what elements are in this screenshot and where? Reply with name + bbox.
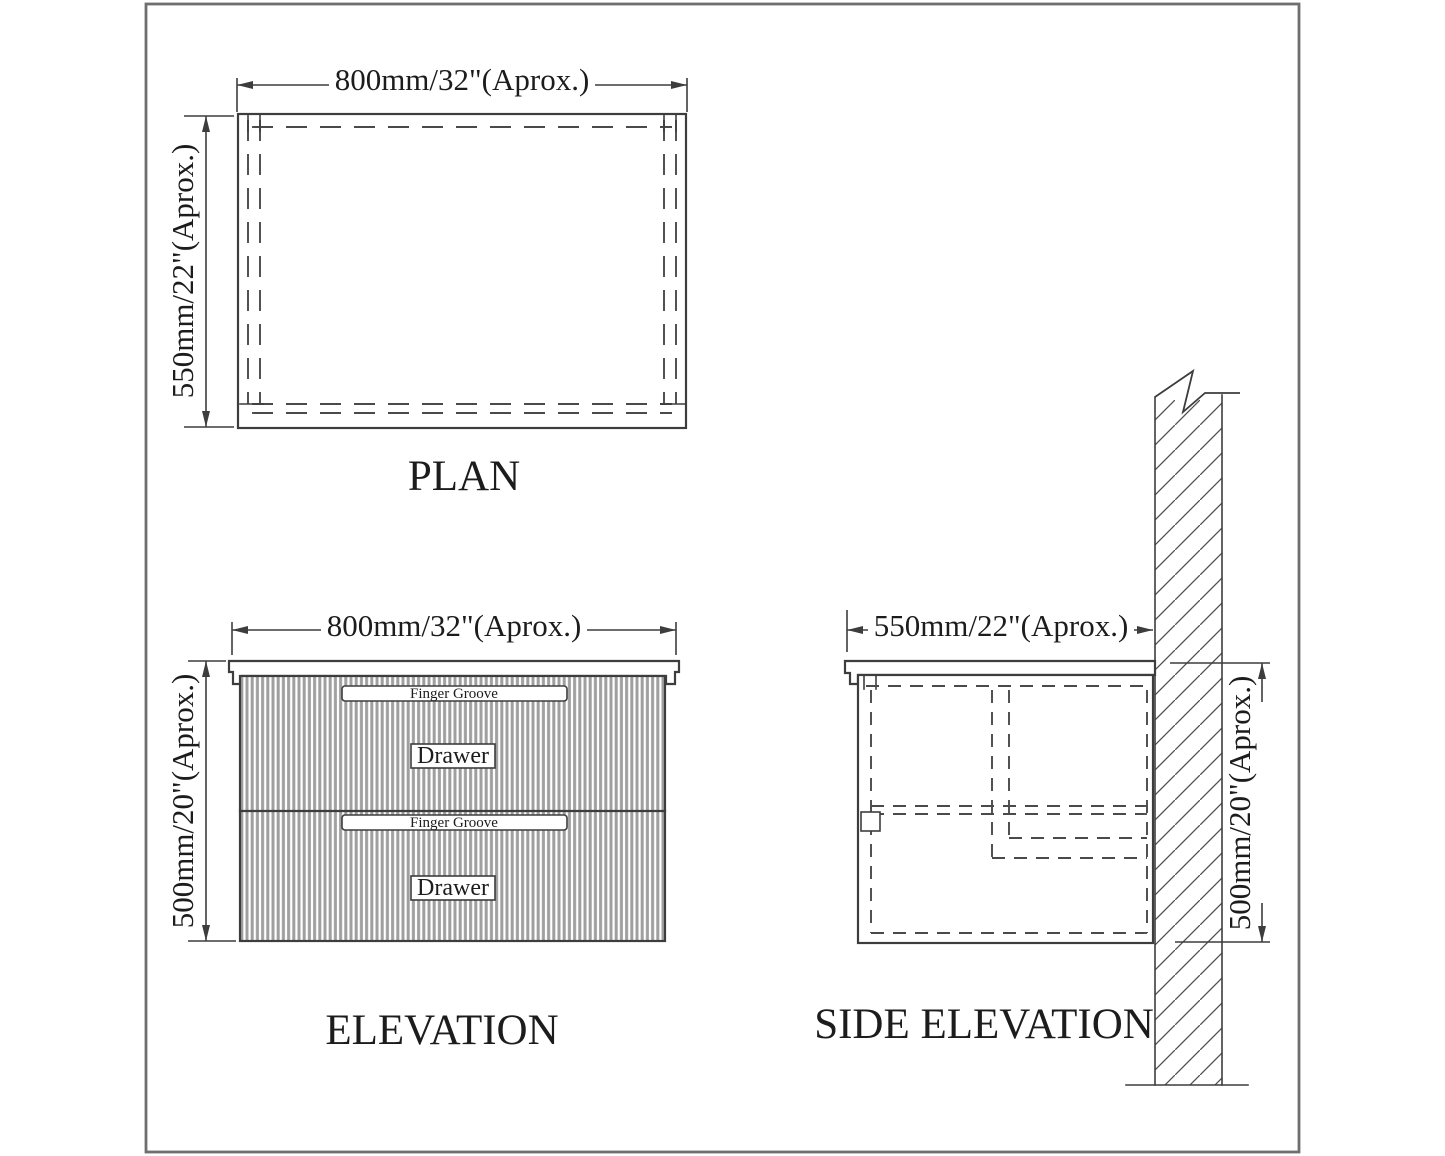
side-depth-dimension-text: 550mm/22"(Aprox.): [874, 608, 1129, 643]
plan-depth-dimension: 550mm/22"(Aprox.): [165, 116, 234, 427]
dimension-arrow-top: [202, 116, 210, 132]
finger-groove-label-bottom: Finger Groove: [410, 815, 498, 831]
elevation-view: Finger Groove Drawer Finger Groove Drawe…: [165, 608, 679, 1054]
dimension-arrow-right: [1137, 626, 1153, 634]
dimension-arrow-right: [671, 81, 687, 89]
drawing-canvas: 800mm/32"(Aprox.) 550mm/22"(Aprox.) PLAN…: [0, 0, 1445, 1156]
drawing-sheet: 800mm/32"(Aprox.) 550mm/22"(Aprox.) PLAN…: [0, 0, 1445, 1156]
drawer-label-bottom: Drawer: [417, 875, 489, 901]
elevation-fluted-body: [240, 676, 665, 941]
dimension-arrow-left: [237, 81, 253, 89]
side-clip-detail: [861, 812, 880, 831]
elevation-height-dimension: 500mm/20"(Aprox.): [165, 661, 236, 941]
plan-outline: [238, 114, 686, 428]
elevation-title: ELEVATION: [325, 1007, 558, 1054]
side-depth-dimension: 550mm/22"(Aprox.): [847, 608, 1153, 652]
dimension-arrow-bottom: [202, 411, 210, 427]
elevation-width-dimension-text: 800mm/32"(Aprox.): [327, 608, 582, 643]
wall-hatch-fill: [1155, 400, 1222, 1085]
drawer-label-top: Drawer: [417, 743, 489, 769]
dimension-arrow-left: [847, 626, 863, 634]
dimension-arrow-top: [1258, 663, 1266, 679]
plan-depth-dimension-text: 550mm/22"(Aprox.): [165, 144, 200, 399]
side-height-dimension-text: 500mm/20"(Aprox.): [1222, 676, 1257, 931]
dimension-arrow-bottom: [202, 925, 210, 941]
elevation-height-dimension-text: 500mm/20"(Aprox.): [165, 674, 200, 929]
dimension-arrow-right: [660, 626, 676, 634]
dimension-arrow-bottom: [1258, 926, 1266, 942]
plan-width-dimension: 800mm/32"(Aprox.): [237, 62, 687, 112]
finger-groove-label-top: Finger Groove: [410, 686, 498, 702]
plan-view: 800mm/32"(Aprox.) 550mm/22"(Aprox.) PLAN: [165, 62, 687, 500]
dimension-arrow-left: [232, 626, 248, 634]
dimension-arrow-top: [202, 661, 210, 677]
plan-title: PLAN: [408, 453, 520, 500]
plan-width-dimension-text: 800mm/32"(Aprox.): [335, 62, 590, 97]
sheet-border: [146, 4, 1299, 1152]
side-body-outline: [858, 675, 1153, 943]
elevation-width-dimension: 800mm/32"(Aprox.): [232, 608, 676, 655]
side-elevation-title: SIDE ELEVATION: [814, 1001, 1154, 1048]
